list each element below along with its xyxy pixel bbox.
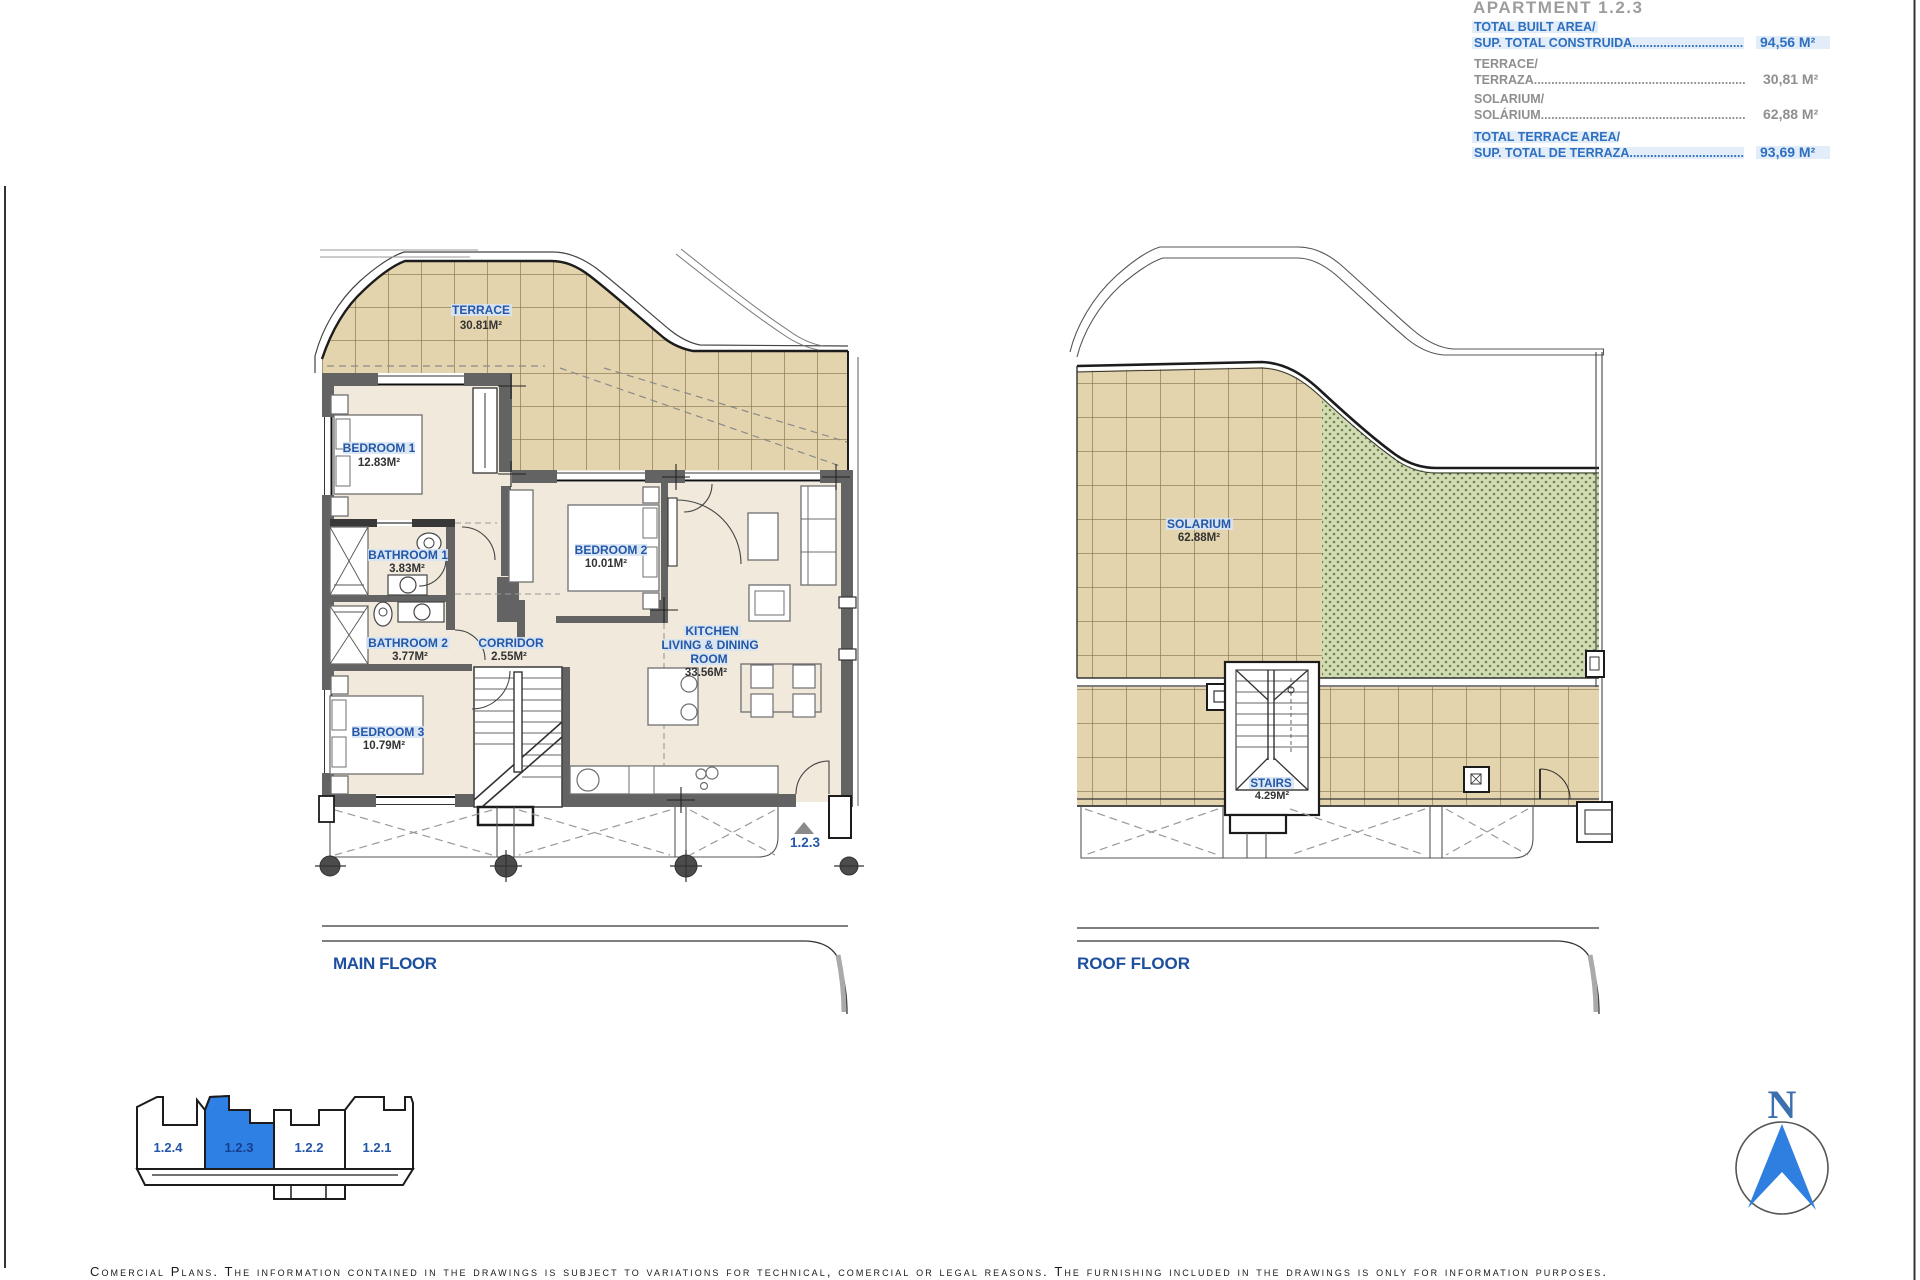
svg-text:LIVING & DINING: LIVING & DINING [661, 638, 758, 652]
svg-text:APARTMENT 1.2.3: APARTMENT 1.2.3 [1473, 0, 1644, 17]
svg-text:MAIN FLOOR: MAIN FLOOR [333, 954, 437, 973]
svg-text:62.88M²: 62.88M² [1178, 532, 1220, 544]
svg-text:STAIRS: STAIRS [1250, 778, 1292, 790]
svg-text:ROOF FLOOR: ROOF FLOOR [1077, 954, 1190, 973]
svg-text:N: N [1768, 1082, 1797, 1127]
svg-text:1.2.3: 1.2.3 [225, 1140, 254, 1155]
svg-text:SOLARIUM/: SOLARIUM/ [1474, 92, 1545, 106]
svg-text:TERRAZA.......................: TERRAZA.................................… [1474, 73, 1746, 87]
svg-text:BEDROOM 3: BEDROOM 3 [352, 725, 425, 739]
svg-text:SUP. TOTAL CONSTRUIDA.........: SUP. TOTAL CONSTRUIDA...................… [1474, 36, 1743, 50]
svg-text:TOTAL BUILT AREA/: TOTAL BUILT AREA/ [1474, 20, 1596, 34]
svg-text:12.83M²: 12.83M² [358, 457, 400, 469]
svg-text:3.83M²: 3.83M² [389, 563, 425, 575]
svg-text:3.77M²: 3.77M² [392, 651, 428, 663]
svg-text:TOTAL TERRACE AREA/: TOTAL TERRACE AREA/ [1474, 130, 1621, 144]
svg-text:SOLARIUM: SOLARIUM [1167, 517, 1231, 531]
svg-text:2.55M²: 2.55M² [491, 651, 527, 663]
svg-text:SUP. TOTAL DE TERRAZA.........: SUP. TOTAL DE TERRAZA...................… [1474, 146, 1744, 160]
svg-text:Comercial Plans. The informati: Comercial Plans. The information contain… [90, 1264, 1606, 1279]
svg-text:CORRIDOR: CORRIDOR [478, 636, 544, 650]
svg-text:33.56M²: 33.56M² [685, 667, 727, 679]
svg-text:BATHROOM 1: BATHROOM 1 [368, 548, 448, 562]
svg-text:TERRACE: TERRACE [452, 303, 510, 317]
svg-text:93,69 M²: 93,69 M² [1760, 144, 1816, 160]
svg-text:1.2.4: 1.2.4 [154, 1140, 184, 1155]
svg-text:KITCHEN: KITCHEN [685, 624, 738, 638]
svg-text:10.79M²: 10.79M² [363, 740, 405, 752]
svg-text:30,81 M²: 30,81 M² [1763, 71, 1819, 87]
svg-text:30.81M²: 30.81M² [460, 320, 502, 332]
svg-text:1.2.1: 1.2.1 [363, 1140, 392, 1155]
svg-text:SOLÁRIUM......................: SOLÁRIUM................................… [1474, 107, 1746, 122]
svg-text:62,88 M²: 62,88 M² [1763, 106, 1819, 122]
svg-text:94,56 M²: 94,56 M² [1760, 34, 1816, 50]
svg-text:ROOM: ROOM [690, 652, 727, 666]
svg-text:BATHROOM 2: BATHROOM 2 [368, 636, 448, 650]
svg-text:BEDROOM 2: BEDROOM 2 [575, 543, 648, 557]
svg-text:BEDROOM 1: BEDROOM 1 [343, 441, 416, 455]
svg-text:TERRACE/: TERRACE/ [1474, 57, 1538, 71]
svg-text:1.2.2: 1.2.2 [295, 1140, 324, 1155]
svg-text:4.29M²: 4.29M² [1255, 790, 1290, 802]
svg-text:1.2.3: 1.2.3 [790, 835, 821, 850]
svg-text:10.01M²: 10.01M² [585, 558, 627, 570]
